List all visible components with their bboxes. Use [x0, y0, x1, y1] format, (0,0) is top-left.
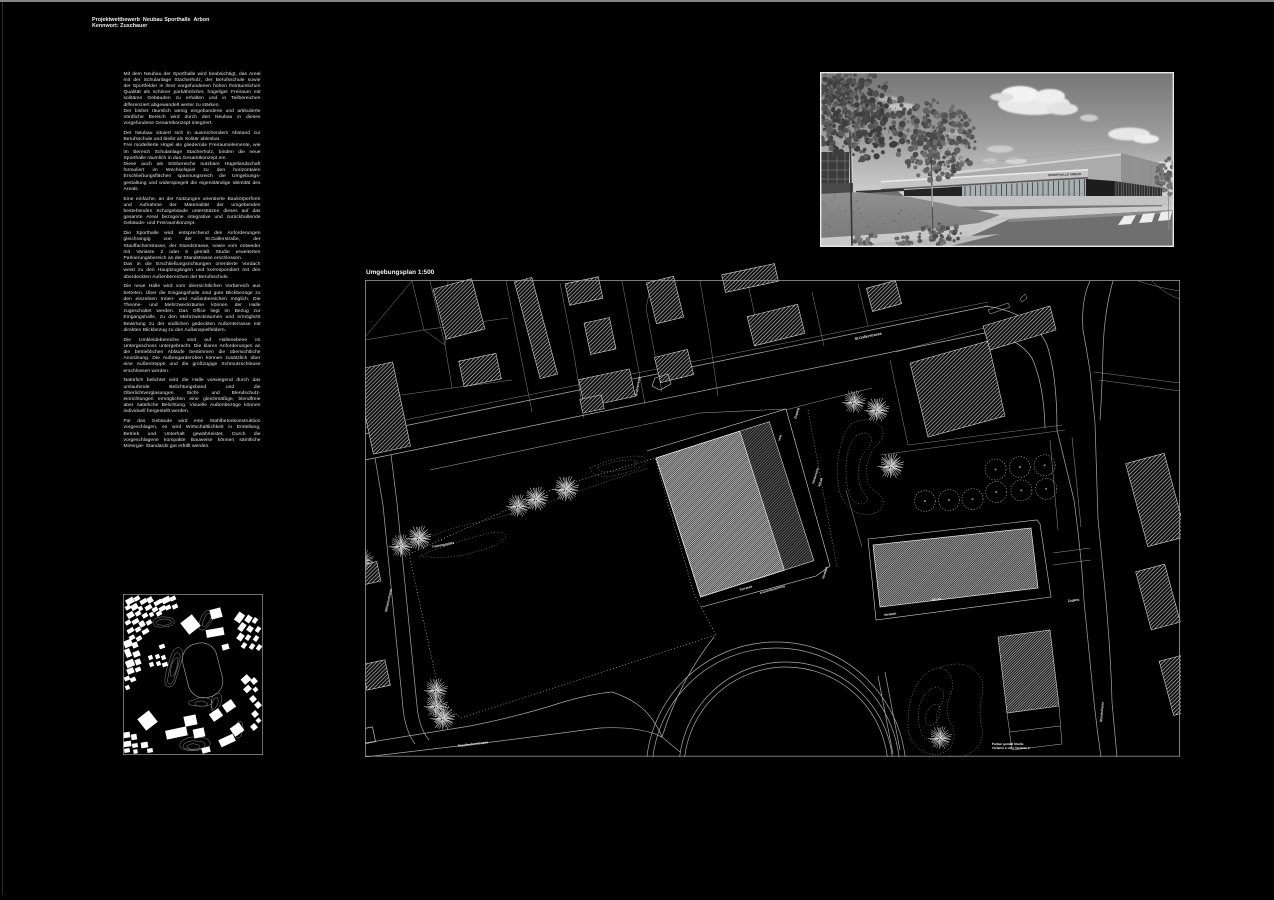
svg-text:Umgebungsplan 1:500: Umgebungsplan 1:500: [366, 269, 435, 276]
svg-text:Variante 2 oder Variante 6: Variante 2 oder Variante 6: [992, 746, 1030, 750]
